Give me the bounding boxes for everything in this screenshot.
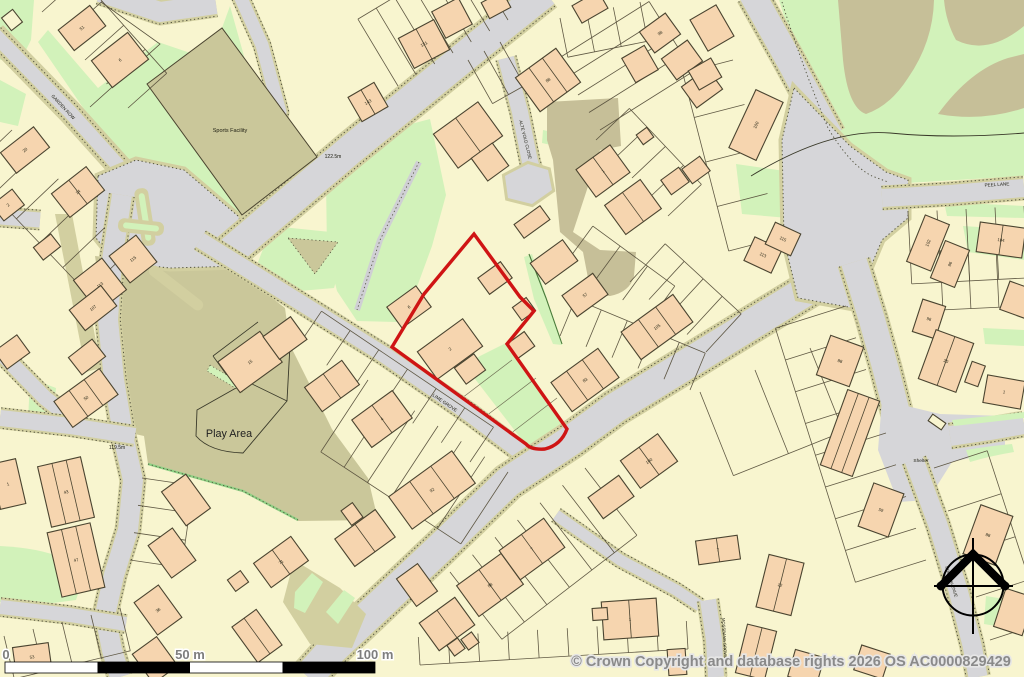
svg-text:119.5m: 119.5m bbox=[109, 445, 125, 451]
svg-text:122.5m: 122.5m bbox=[325, 154, 342, 160]
svg-text:Play Area: Play Area bbox=[206, 428, 252, 440]
svg-text:50 m: 50 m bbox=[175, 647, 205, 662]
svg-text:0: 0 bbox=[2, 647, 9, 662]
svg-text:Sports Facility: Sports Facility bbox=[213, 128, 248, 134]
svg-text:100 m: 100 m bbox=[357, 647, 394, 662]
svg-text:© Crown Copyright and database: © Crown Copyright and database rights 20… bbox=[571, 654, 1011, 670]
svg-text:Shelter: Shelter bbox=[913, 458, 929, 464]
